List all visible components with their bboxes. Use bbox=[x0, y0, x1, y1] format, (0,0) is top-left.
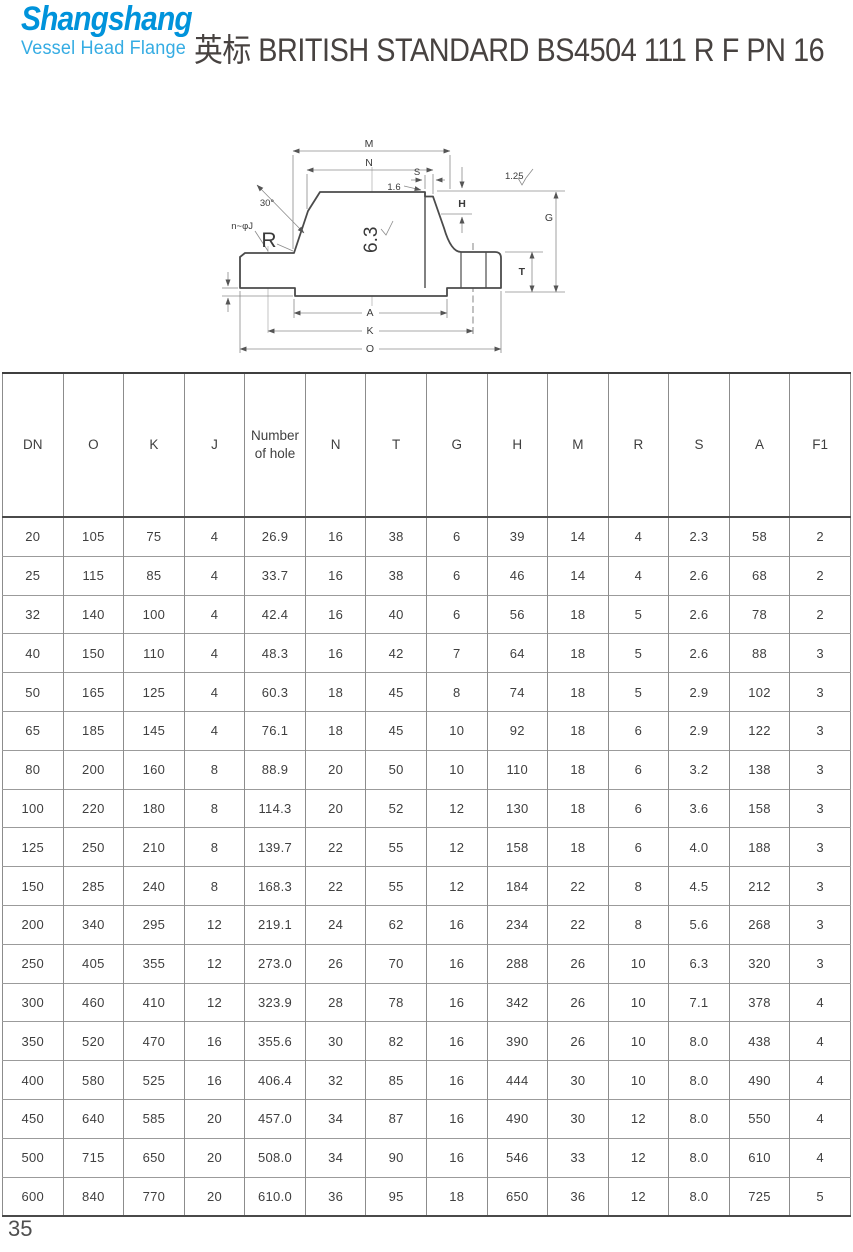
table-cell: 39 bbox=[487, 517, 548, 556]
table-cell: 4 bbox=[790, 983, 851, 1022]
table-header: DN O K J Number of hole N T G H M R S A … bbox=[3, 373, 851, 517]
table-cell: 4 bbox=[184, 673, 245, 712]
table-cell: 24 bbox=[305, 905, 366, 944]
table-row: 1502852408168.32255121842284.52123 bbox=[3, 867, 851, 906]
table-cell: 320 bbox=[729, 944, 790, 983]
table-cell: 3 bbox=[790, 750, 851, 789]
table-cell: 715 bbox=[63, 1138, 124, 1177]
table-cell: 410 bbox=[124, 983, 185, 1022]
table-cell: 585 bbox=[124, 1099, 185, 1138]
table-cell: 490 bbox=[487, 1099, 548, 1138]
table-cell: 22 bbox=[548, 905, 609, 944]
table-cell: 70 bbox=[366, 944, 427, 983]
table-cell: 22 bbox=[305, 828, 366, 867]
table-cell: 8.0 bbox=[669, 1061, 730, 1100]
table-cell: 95 bbox=[366, 1177, 427, 1216]
table-cell: 16 bbox=[426, 1022, 487, 1061]
column-header-holes: Number of hole bbox=[245, 373, 306, 517]
table-cell: 102 bbox=[729, 673, 790, 712]
column-header-o: O bbox=[63, 373, 124, 517]
table-cell: 180 bbox=[124, 789, 185, 828]
table-cell: 18 bbox=[305, 673, 366, 712]
table-cell: 12 bbox=[608, 1099, 669, 1138]
table-cell: 90 bbox=[366, 1138, 427, 1177]
table-cell: 33.7 bbox=[245, 556, 306, 595]
table-cell: 2.6 bbox=[669, 634, 730, 673]
table-cell: 6 bbox=[426, 517, 487, 556]
page-number: 35 bbox=[8, 1216, 32, 1242]
table-cell: 16 bbox=[184, 1061, 245, 1100]
radius-label: R bbox=[261, 229, 276, 252]
table-cell: 610 bbox=[729, 1138, 790, 1177]
table-cell: 4 bbox=[184, 634, 245, 673]
table-cell: 6 bbox=[608, 711, 669, 750]
dim-label-t: T bbox=[519, 266, 526, 278]
table-row: 40058052516406.432851644430108.04904 bbox=[3, 1061, 851, 1100]
table-cell: 30 bbox=[305, 1022, 366, 1061]
table-cell: 42 bbox=[366, 634, 427, 673]
table-cell: 16 bbox=[305, 556, 366, 595]
dim-label-s: S bbox=[414, 167, 420, 178]
table-cell: 20 bbox=[184, 1138, 245, 1177]
table-cell: 3 bbox=[790, 789, 851, 828]
table-cell: 4 bbox=[184, 595, 245, 634]
table-cell: 8 bbox=[184, 828, 245, 867]
table-cell: 200 bbox=[3, 905, 64, 944]
table-cell: 600 bbox=[3, 1177, 64, 1216]
table-row: 50071565020508.034901654633128.06104 bbox=[3, 1138, 851, 1177]
angle-label: 30° bbox=[260, 198, 275, 209]
table-cell: 20 bbox=[184, 1177, 245, 1216]
table-cell: 640 bbox=[63, 1099, 124, 1138]
table-cell: 610.0 bbox=[245, 1177, 306, 1216]
table-cell: 10 bbox=[608, 1022, 669, 1061]
table-cell: 390 bbox=[487, 1022, 548, 1061]
table-cell: 22 bbox=[548, 867, 609, 906]
table-cell: 36 bbox=[305, 1177, 366, 1216]
table-cell: 165 bbox=[63, 673, 124, 712]
table-cell: 65 bbox=[3, 711, 64, 750]
table-cell: 450 bbox=[3, 1099, 64, 1138]
table-cell: 7 bbox=[426, 634, 487, 673]
table-row: 30046041012323.928781634226107.13784 bbox=[3, 983, 851, 1022]
column-header-n: N bbox=[305, 373, 366, 517]
table-cell: 725 bbox=[729, 1177, 790, 1216]
table-cell: 4 bbox=[790, 1022, 851, 1061]
table-cell: 5 bbox=[608, 595, 669, 634]
table-row: 35052047016355.630821639026108.04384 bbox=[3, 1022, 851, 1061]
table-cell: 16 bbox=[426, 983, 487, 1022]
table-cell: 139.7 bbox=[245, 828, 306, 867]
table-cell: 82 bbox=[366, 1022, 427, 1061]
table-body: 2010575426.916386391442.35822511585433.7… bbox=[3, 517, 851, 1216]
table-cell: 168.3 bbox=[245, 867, 306, 906]
table-cell: 580 bbox=[63, 1061, 124, 1100]
table-cell: 5 bbox=[790, 1177, 851, 1216]
table-cell: 295 bbox=[124, 905, 185, 944]
table-cell: 16 bbox=[305, 595, 366, 634]
table-cell: 10 bbox=[426, 711, 487, 750]
table-cell: 6 bbox=[608, 789, 669, 828]
dim-label-m: M bbox=[365, 138, 374, 150]
table-row: 80200160888.92050101101863.21383 bbox=[3, 750, 851, 789]
table-cell: 250 bbox=[63, 828, 124, 867]
table-cell: 68 bbox=[729, 556, 790, 595]
table-cell: 100 bbox=[124, 595, 185, 634]
column-header-dn: DN bbox=[3, 373, 64, 517]
table-cell: 46 bbox=[487, 556, 548, 595]
table-cell: 3 bbox=[790, 905, 851, 944]
table-cell: 3 bbox=[790, 634, 851, 673]
table-cell: 12 bbox=[184, 905, 245, 944]
table-cell: 26 bbox=[305, 944, 366, 983]
table-cell: 4.5 bbox=[669, 867, 730, 906]
table-cell: 14 bbox=[548, 556, 609, 595]
table-cell: 10 bbox=[608, 1061, 669, 1100]
table-cell: 6 bbox=[608, 828, 669, 867]
table-cell: 4 bbox=[608, 517, 669, 556]
table-cell: 8 bbox=[608, 867, 669, 906]
table-cell: 100 bbox=[3, 789, 64, 828]
table-row: 2511585433.716386461442.6682 bbox=[3, 556, 851, 595]
table-row: 40150110448.316427641852.6883 bbox=[3, 634, 851, 673]
table-cell: 140 bbox=[63, 595, 124, 634]
table-cell: 110 bbox=[487, 750, 548, 789]
table-cell: 158 bbox=[487, 828, 548, 867]
table-cell: 88.9 bbox=[245, 750, 306, 789]
table-cell: 3.6 bbox=[669, 789, 730, 828]
table-cell: 16 bbox=[305, 634, 366, 673]
column-header-s: S bbox=[669, 373, 730, 517]
table-cell: 6 bbox=[426, 595, 487, 634]
table-cell: 184 bbox=[487, 867, 548, 906]
table-cell: 64 bbox=[487, 634, 548, 673]
header-row: DN O K J Number of hole N T G H M R S A … bbox=[3, 373, 851, 517]
table-cell: 10 bbox=[608, 944, 669, 983]
table-cell: 110 bbox=[124, 634, 185, 673]
table-cell: 78 bbox=[729, 595, 790, 634]
table-cell: 16 bbox=[426, 1099, 487, 1138]
table-cell: 240 bbox=[124, 867, 185, 906]
table-cell: 45 bbox=[366, 673, 427, 712]
table-cell: 18 bbox=[548, 789, 609, 828]
table-row: 2010575426.916386391442.3582 bbox=[3, 517, 851, 556]
table-cell: 378 bbox=[729, 983, 790, 1022]
dim-label-g: G bbox=[545, 212, 553, 224]
table-cell: 490 bbox=[729, 1061, 790, 1100]
table-cell: 114.3 bbox=[245, 789, 306, 828]
table-cell: 125 bbox=[3, 828, 64, 867]
logo-line1: Shangshang bbox=[21, 2, 192, 36]
table-cell: 200 bbox=[63, 750, 124, 789]
table-cell: 8.0 bbox=[669, 1138, 730, 1177]
table-cell: 770 bbox=[124, 1177, 185, 1216]
surface-finish-value: 1.25 bbox=[505, 171, 524, 182]
spec-table: DN O K J Number of hole N T G H M R S A … bbox=[2, 372, 851, 1217]
table-cell: 210 bbox=[124, 828, 185, 867]
table-cell: 323.9 bbox=[245, 983, 306, 1022]
table-cell: 50 bbox=[3, 673, 64, 712]
table-cell: 273.0 bbox=[245, 944, 306, 983]
table-cell: 33 bbox=[548, 1138, 609, 1177]
table-cell: 12 bbox=[426, 789, 487, 828]
table-cell: 130 bbox=[487, 789, 548, 828]
table-cell: 18 bbox=[548, 673, 609, 712]
table-cell: 48.3 bbox=[245, 634, 306, 673]
table-cell: 122 bbox=[729, 711, 790, 750]
table-row: 65185145476.1184510921862.91223 bbox=[3, 711, 851, 750]
table-cell: 18 bbox=[548, 634, 609, 673]
table-cell: 30 bbox=[548, 1061, 609, 1100]
table-cell: 12 bbox=[426, 867, 487, 906]
column-header-a: A bbox=[729, 373, 790, 517]
table-cell: 3 bbox=[790, 828, 851, 867]
table-cell: 18 bbox=[548, 828, 609, 867]
table-cell: 40 bbox=[3, 634, 64, 673]
table-cell: 185 bbox=[63, 711, 124, 750]
bolt-holes-label: n~φJ bbox=[231, 221, 253, 232]
table-cell: 650 bbox=[124, 1138, 185, 1177]
table-cell: 74 bbox=[487, 673, 548, 712]
table-cell: 4 bbox=[608, 556, 669, 595]
table-cell: 3 bbox=[790, 944, 851, 983]
table-cell: 4 bbox=[184, 556, 245, 595]
table-cell: 355.6 bbox=[245, 1022, 306, 1061]
table-cell: 16 bbox=[426, 944, 487, 983]
column-header-f1: F1 bbox=[790, 373, 851, 517]
table-cell: 18 bbox=[548, 711, 609, 750]
table-cell: 2.6 bbox=[669, 556, 730, 595]
company-logo: Shangshang Vessel Head Flange bbox=[21, 2, 215, 58]
dim-label-o: O bbox=[366, 343, 374, 355]
table-cell: 342 bbox=[487, 983, 548, 1022]
table-cell: 52 bbox=[366, 789, 427, 828]
table-row: 45064058520457.034871649030128.05504 bbox=[3, 1099, 851, 1138]
table-cell: 88 bbox=[729, 634, 790, 673]
table-cell: 12 bbox=[184, 983, 245, 1022]
table-cell: 150 bbox=[3, 867, 64, 906]
table-cell: 62 bbox=[366, 905, 427, 944]
table-row: 1002201808114.32052121301863.61583 bbox=[3, 789, 851, 828]
table-cell: 18 bbox=[548, 750, 609, 789]
table-cell: 58 bbox=[729, 517, 790, 556]
column-header-g: G bbox=[426, 373, 487, 517]
table-cell: 188 bbox=[729, 828, 790, 867]
table-cell: 26.9 bbox=[245, 517, 306, 556]
table-cell: 212 bbox=[729, 867, 790, 906]
table-cell: 3 bbox=[790, 711, 851, 750]
table-cell: 92 bbox=[487, 711, 548, 750]
table-cell: 160 bbox=[124, 750, 185, 789]
roughness-value: 6.3 bbox=[361, 227, 382, 253]
table-cell: 20 bbox=[305, 789, 366, 828]
table-cell: 150 bbox=[63, 634, 124, 673]
table-cell: 8.0 bbox=[669, 1022, 730, 1061]
table-cell: 16 bbox=[426, 905, 487, 944]
table-cell: 6 bbox=[426, 556, 487, 595]
table-cell: 45 bbox=[366, 711, 427, 750]
table-cell: 25 bbox=[3, 556, 64, 595]
table-row: 32140100442.416406561852.6782 bbox=[3, 595, 851, 634]
table-cell: 56 bbox=[487, 595, 548, 634]
table-row: 1252502108139.72255121581864.01883 bbox=[3, 828, 851, 867]
table-cell: 12 bbox=[184, 944, 245, 983]
table-cell: 268 bbox=[729, 905, 790, 944]
table-cell: 444 bbox=[487, 1061, 548, 1100]
dim-label-n: N bbox=[365, 157, 373, 169]
table-cell: 4 bbox=[184, 517, 245, 556]
table-cell: 5 bbox=[608, 634, 669, 673]
table-cell: 340 bbox=[63, 905, 124, 944]
column-header-j: J bbox=[184, 373, 245, 517]
table-cell: 840 bbox=[63, 1177, 124, 1216]
table-cell: 125 bbox=[124, 673, 185, 712]
catalog-page: Shangshang Vessel Head Flange 英标 BRITISH… bbox=[0, 0, 853, 1252]
page-title: 英标 BRITISH STANDARD BS4504 111 R F PN 16 bbox=[194, 25, 824, 71]
table-cell: 50 bbox=[366, 750, 427, 789]
column-header-h: H bbox=[487, 373, 548, 517]
table-cell: 10 bbox=[426, 750, 487, 789]
table-cell: 26 bbox=[548, 1022, 609, 1061]
table-cell: 5.6 bbox=[669, 905, 730, 944]
table-cell: 16 bbox=[305, 517, 366, 556]
table-cell: 470 bbox=[124, 1022, 185, 1061]
logo-line2: Vessel Head Flange bbox=[21, 39, 205, 58]
table-cell: 105 bbox=[63, 517, 124, 556]
table-cell: 2 bbox=[790, 595, 851, 634]
dim-label-a: A bbox=[366, 307, 373, 319]
table-cell: 4 bbox=[790, 1138, 851, 1177]
table-cell: 5 bbox=[608, 673, 669, 712]
table-cell: 42.4 bbox=[245, 595, 306, 634]
table-cell: 2 bbox=[790, 517, 851, 556]
table-cell: 10 bbox=[608, 983, 669, 1022]
table-cell: 3.2 bbox=[669, 750, 730, 789]
table-cell: 8 bbox=[608, 905, 669, 944]
table-cell: 8 bbox=[184, 867, 245, 906]
table-cell: 30 bbox=[548, 1099, 609, 1138]
table-row: 25040535512273.026701628826106.33203 bbox=[3, 944, 851, 983]
table-cell: 250 bbox=[3, 944, 64, 983]
table-cell: 16 bbox=[426, 1138, 487, 1177]
table-cell: 145 bbox=[124, 711, 185, 750]
table-cell: 460 bbox=[63, 983, 124, 1022]
table-cell: 400 bbox=[3, 1061, 64, 1100]
table-cell: 350 bbox=[3, 1022, 64, 1061]
table-cell: 32 bbox=[305, 1061, 366, 1100]
table-cell: 546 bbox=[487, 1138, 548, 1177]
table-cell: 355 bbox=[124, 944, 185, 983]
table-cell: 219.1 bbox=[245, 905, 306, 944]
table-cell: 8 bbox=[184, 750, 245, 789]
dim-label-1-6: 1.6 bbox=[387, 182, 400, 193]
table-cell: 20 bbox=[305, 750, 366, 789]
table-cell: 18 bbox=[305, 711, 366, 750]
column-header-m: M bbox=[548, 373, 609, 517]
table-cell: 220 bbox=[63, 789, 124, 828]
table-cell: 12 bbox=[426, 828, 487, 867]
table-cell: 4 bbox=[790, 1099, 851, 1138]
table-cell: 7.1 bbox=[669, 983, 730, 1022]
column-header-k: K bbox=[124, 373, 185, 517]
flange-diagram: M N S 1.6 H G 1.25 30° n~φJ R 6.3 T A K … bbox=[205, 125, 635, 375]
table-cell: 234 bbox=[487, 905, 548, 944]
table-cell: 4.0 bbox=[669, 828, 730, 867]
dim-label-k: K bbox=[366, 325, 373, 337]
table-cell: 650 bbox=[487, 1177, 548, 1216]
table-cell: 438 bbox=[729, 1022, 790, 1061]
table-cell: 500 bbox=[3, 1138, 64, 1177]
table-cell: 87 bbox=[366, 1099, 427, 1138]
table-cell: 28 bbox=[305, 983, 366, 1022]
table-cell: 3 bbox=[790, 673, 851, 712]
table-cell: 6.3 bbox=[669, 944, 730, 983]
table-cell: 85 bbox=[366, 1061, 427, 1100]
table-cell: 405 bbox=[63, 944, 124, 983]
table-cell: 457.0 bbox=[245, 1099, 306, 1138]
table-cell: 300 bbox=[3, 983, 64, 1022]
table-cell: 8 bbox=[184, 789, 245, 828]
table-cell: 18 bbox=[426, 1177, 487, 1216]
table-cell: 20 bbox=[3, 517, 64, 556]
table-cell: 2 bbox=[790, 556, 851, 595]
table-cell: 288 bbox=[487, 944, 548, 983]
table-cell: 3 bbox=[790, 867, 851, 906]
table-cell: 16 bbox=[184, 1022, 245, 1061]
table-cell: 2.9 bbox=[669, 673, 730, 712]
table-cell: 40 bbox=[366, 595, 427, 634]
table-cell: 525 bbox=[124, 1061, 185, 1100]
table-cell: 12 bbox=[608, 1138, 669, 1177]
table-cell: 12 bbox=[608, 1177, 669, 1216]
table-cell: 2.3 bbox=[669, 517, 730, 556]
table-cell: 285 bbox=[63, 867, 124, 906]
column-header-t: T bbox=[366, 373, 427, 517]
dim-label-h: H bbox=[458, 198, 466, 210]
table-cell: 38 bbox=[366, 556, 427, 595]
table-cell: 20 bbox=[184, 1099, 245, 1138]
table-cell: 8.0 bbox=[669, 1099, 730, 1138]
table-cell: 26 bbox=[548, 944, 609, 983]
table-cell: 6 bbox=[608, 750, 669, 789]
table-cell: 16 bbox=[426, 1061, 487, 1100]
table-cell: 75 bbox=[124, 517, 185, 556]
table-cell: 32 bbox=[3, 595, 64, 634]
table-cell: 8 bbox=[426, 673, 487, 712]
table-row: 60084077020610.036951865036128.07255 bbox=[3, 1177, 851, 1216]
table-cell: 78 bbox=[366, 983, 427, 1022]
table-row: 50165125460.318458741852.91023 bbox=[3, 673, 851, 712]
table-cell: 80 bbox=[3, 750, 64, 789]
table-cell: 8.0 bbox=[669, 1177, 730, 1216]
table-cell: 34 bbox=[305, 1138, 366, 1177]
table-cell: 2.6 bbox=[669, 595, 730, 634]
table-cell: 550 bbox=[729, 1099, 790, 1138]
table-cell: 158 bbox=[729, 789, 790, 828]
table-cell: 55 bbox=[366, 867, 427, 906]
table-cell: 520 bbox=[63, 1022, 124, 1061]
column-header-r: R bbox=[608, 373, 669, 517]
table-row: 20034029512219.12462162342285.62683 bbox=[3, 905, 851, 944]
table-cell: 18 bbox=[548, 595, 609, 634]
table-cell: 38 bbox=[366, 517, 427, 556]
table-cell: 55 bbox=[366, 828, 427, 867]
table-cell: 138 bbox=[729, 750, 790, 789]
table-cell: 76.1 bbox=[245, 711, 306, 750]
table-cell: 2.9 bbox=[669, 711, 730, 750]
table-cell: 34 bbox=[305, 1099, 366, 1138]
table-cell: 22 bbox=[305, 867, 366, 906]
